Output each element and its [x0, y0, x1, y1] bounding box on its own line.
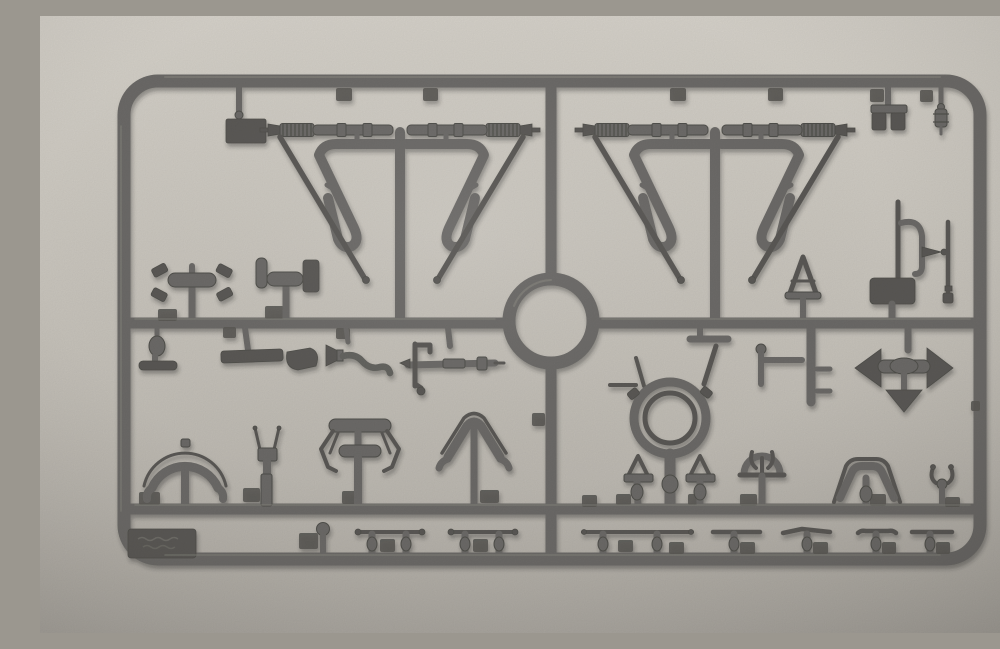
- photo-model-kit-sprue: Gray injection-molded plastic model kit …: [40, 16, 1000, 633]
- vignette: [40, 16, 1000, 633]
